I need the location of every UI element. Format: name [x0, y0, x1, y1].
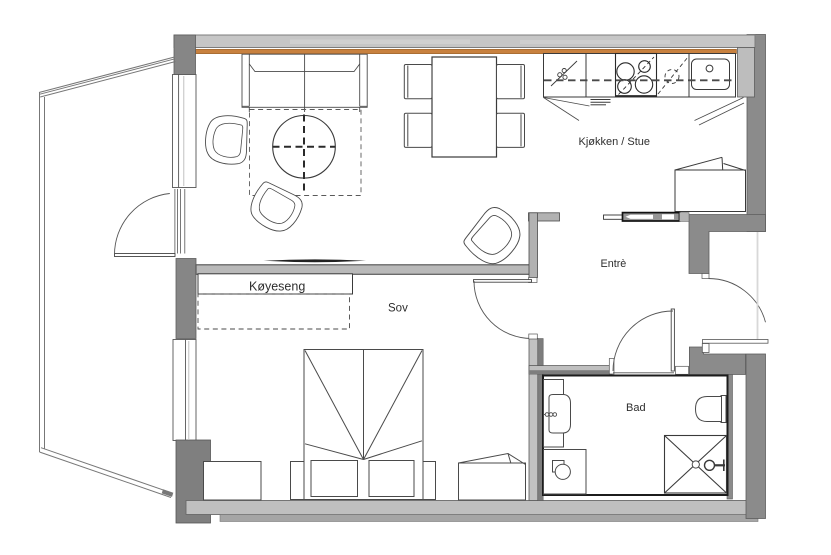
svg-text:Kjøkken / Stue: Kjøkken / Stue — [579, 136, 651, 148]
svg-text:Sov: Sov — [388, 303, 408, 315]
svg-text:Køyeseng: Køyeseng — [249, 279, 305, 293]
svg-text:Entrè: Entrè — [601, 258, 627, 270]
svg-text:Bad: Bad — [626, 402, 646, 414]
